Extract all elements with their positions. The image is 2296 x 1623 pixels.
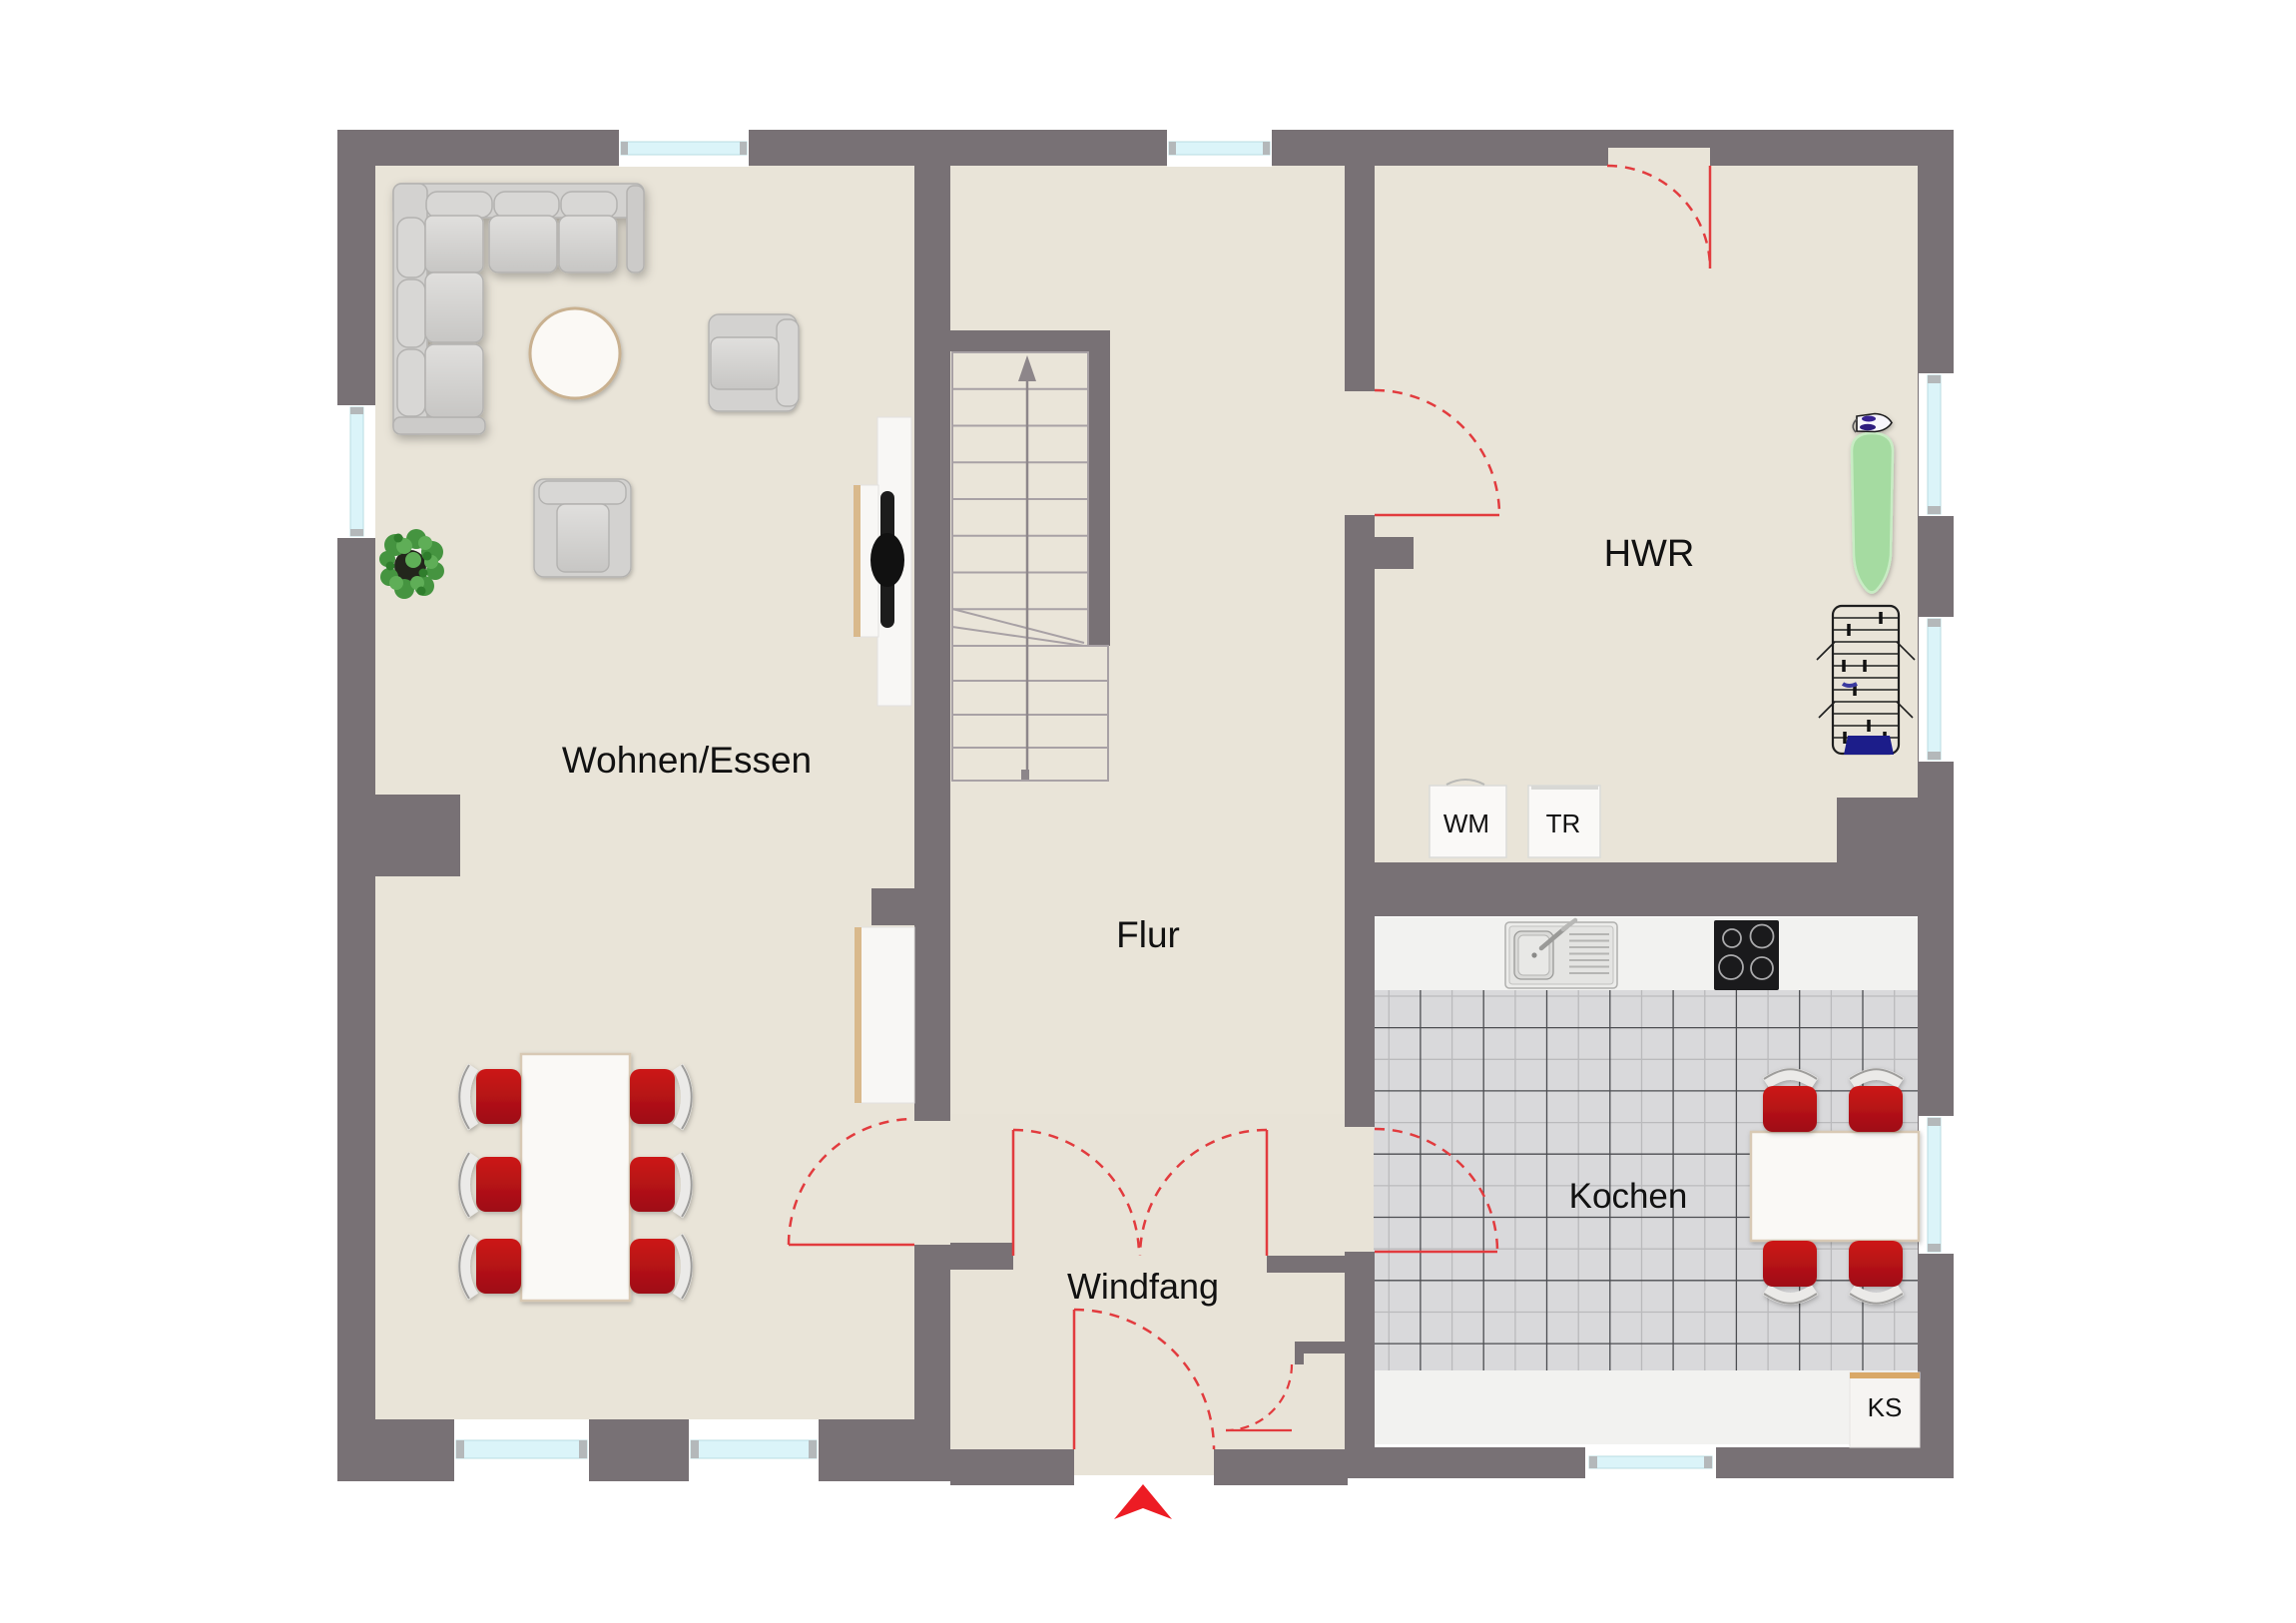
svg-text:Flur: Flur (1116, 914, 1180, 955)
svg-text:Wohnen/Essen: Wohnen/Essen (562, 740, 812, 781)
svg-text:KS: KS (1868, 1392, 1903, 1422)
svg-text:WM: WM (1443, 809, 1489, 838)
svg-text:HWR: HWR (1604, 533, 1695, 575)
svg-text:Windfang: Windfang (1067, 1266, 1219, 1307)
svg-text:Kochen: Kochen (1569, 1177, 1688, 1216)
svg-text:TR: TR (1546, 809, 1581, 838)
